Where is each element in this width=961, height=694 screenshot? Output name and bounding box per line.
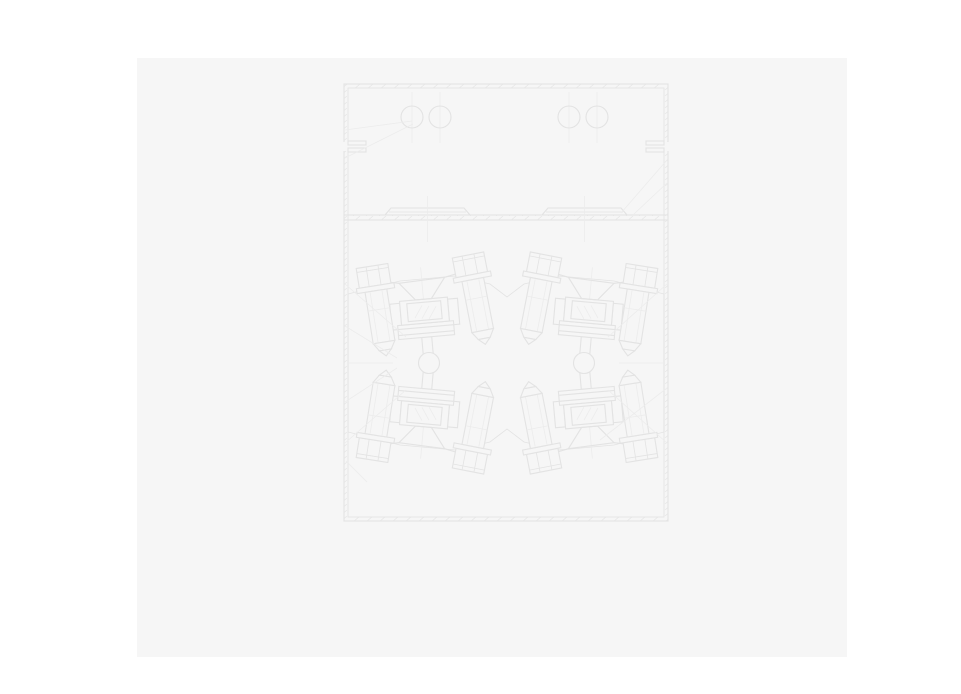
- pivot-circle-left: [419, 353, 440, 374]
- drawing-panel: [137, 58, 847, 657]
- screenshot-canvas: [0, 0, 961, 694]
- technical-drawing: [0, 0, 961, 694]
- pivot-circle-right: [574, 353, 595, 374]
